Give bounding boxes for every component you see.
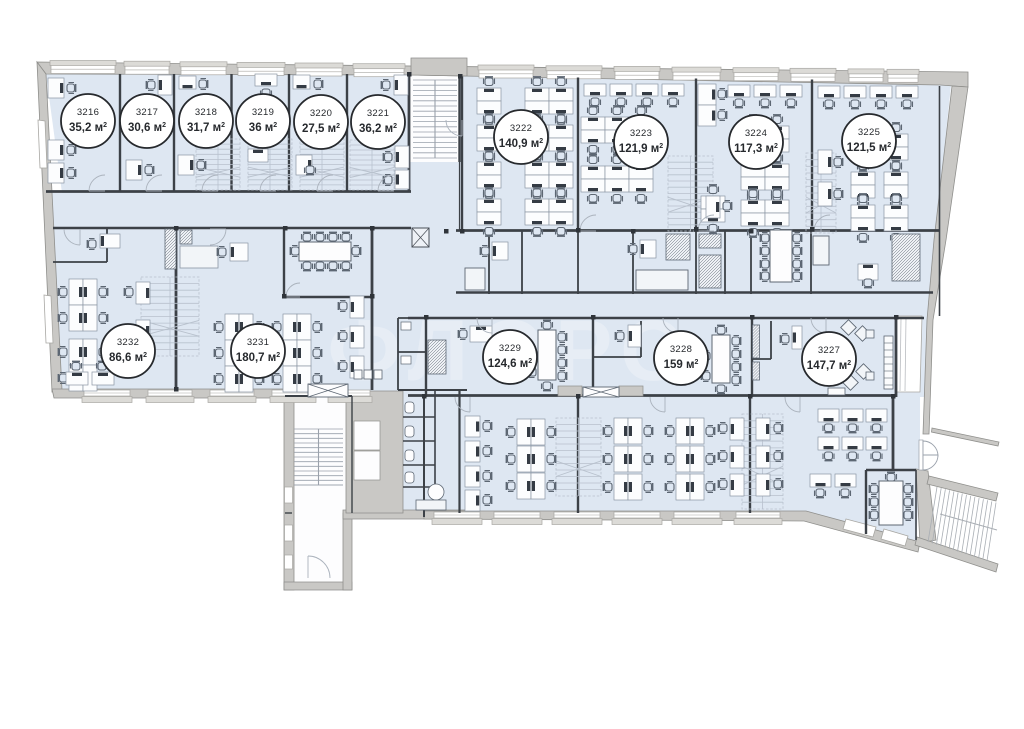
svg-text:3216: 3216 (77, 107, 99, 118)
svg-text:3221: 3221 (367, 108, 389, 119)
svg-text:36 м2: 36 м2 (249, 122, 278, 134)
svg-text:3225: 3225 (858, 127, 880, 138)
svg-text:140,9 м2: 140,9 м2 (499, 138, 543, 150)
svg-text:27,5 м2: 27,5 м2 (302, 123, 340, 135)
svg-text:36,2 м2: 36,2 м2 (359, 123, 397, 135)
svg-text:3223: 3223 (630, 128, 652, 139)
svg-text:3231: 3231 (247, 337, 269, 348)
svg-text:3222: 3222 (510, 123, 532, 134)
svg-text:35,2 м2: 35,2 м2 (69, 122, 107, 134)
svg-text:3220: 3220 (310, 108, 332, 119)
svg-text:30,6 м2: 30,6 м2 (128, 122, 166, 134)
svg-text:31,7 м2: 31,7 м2 (187, 122, 225, 134)
svg-text:124,6 м2: 124,6 м2 (488, 358, 532, 370)
svg-text:3224: 3224 (745, 128, 767, 139)
svg-text:117,3 м2: 117,3 м2 (734, 143, 778, 155)
svg-text:121,9 м2: 121,9 м2 (619, 143, 663, 155)
svg-text:121,5 м2: 121,5 м2 (847, 142, 891, 154)
svg-text:3219: 3219 (252, 107, 274, 118)
svg-text:3217: 3217 (136, 107, 158, 118)
svg-text:3227: 3227 (818, 345, 840, 356)
svg-text:3228: 3228 (670, 344, 692, 355)
svg-text:147,7 м2: 147,7 м2 (807, 360, 851, 372)
svg-text:3229: 3229 (499, 343, 521, 354)
svg-text:3232: 3232 (117, 337, 139, 348)
svg-text:86,6 м2: 86,6 м2 (109, 352, 147, 364)
svg-text:3218: 3218 (195, 107, 217, 118)
svg-text:180,7 м2: 180,7 м2 (236, 352, 280, 364)
svg-text:159 м2: 159 м2 (664, 359, 699, 371)
